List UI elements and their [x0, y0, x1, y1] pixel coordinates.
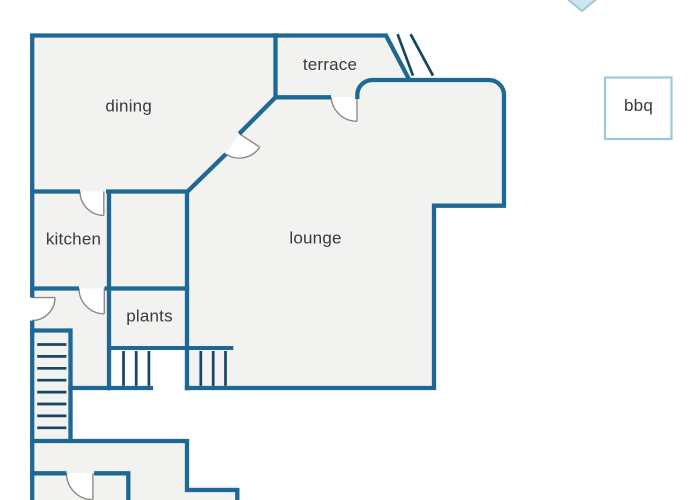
svg-text:kitchen: kitchen	[46, 230, 101, 249]
svg-text:lounge: lounge	[289, 229, 341, 248]
svg-text:dining: dining	[105, 97, 152, 116]
svg-text:terrace: terrace	[303, 55, 357, 74]
svg-text:plants: plants	[126, 307, 173, 326]
svg-text:bbq: bbq	[624, 96, 653, 115]
